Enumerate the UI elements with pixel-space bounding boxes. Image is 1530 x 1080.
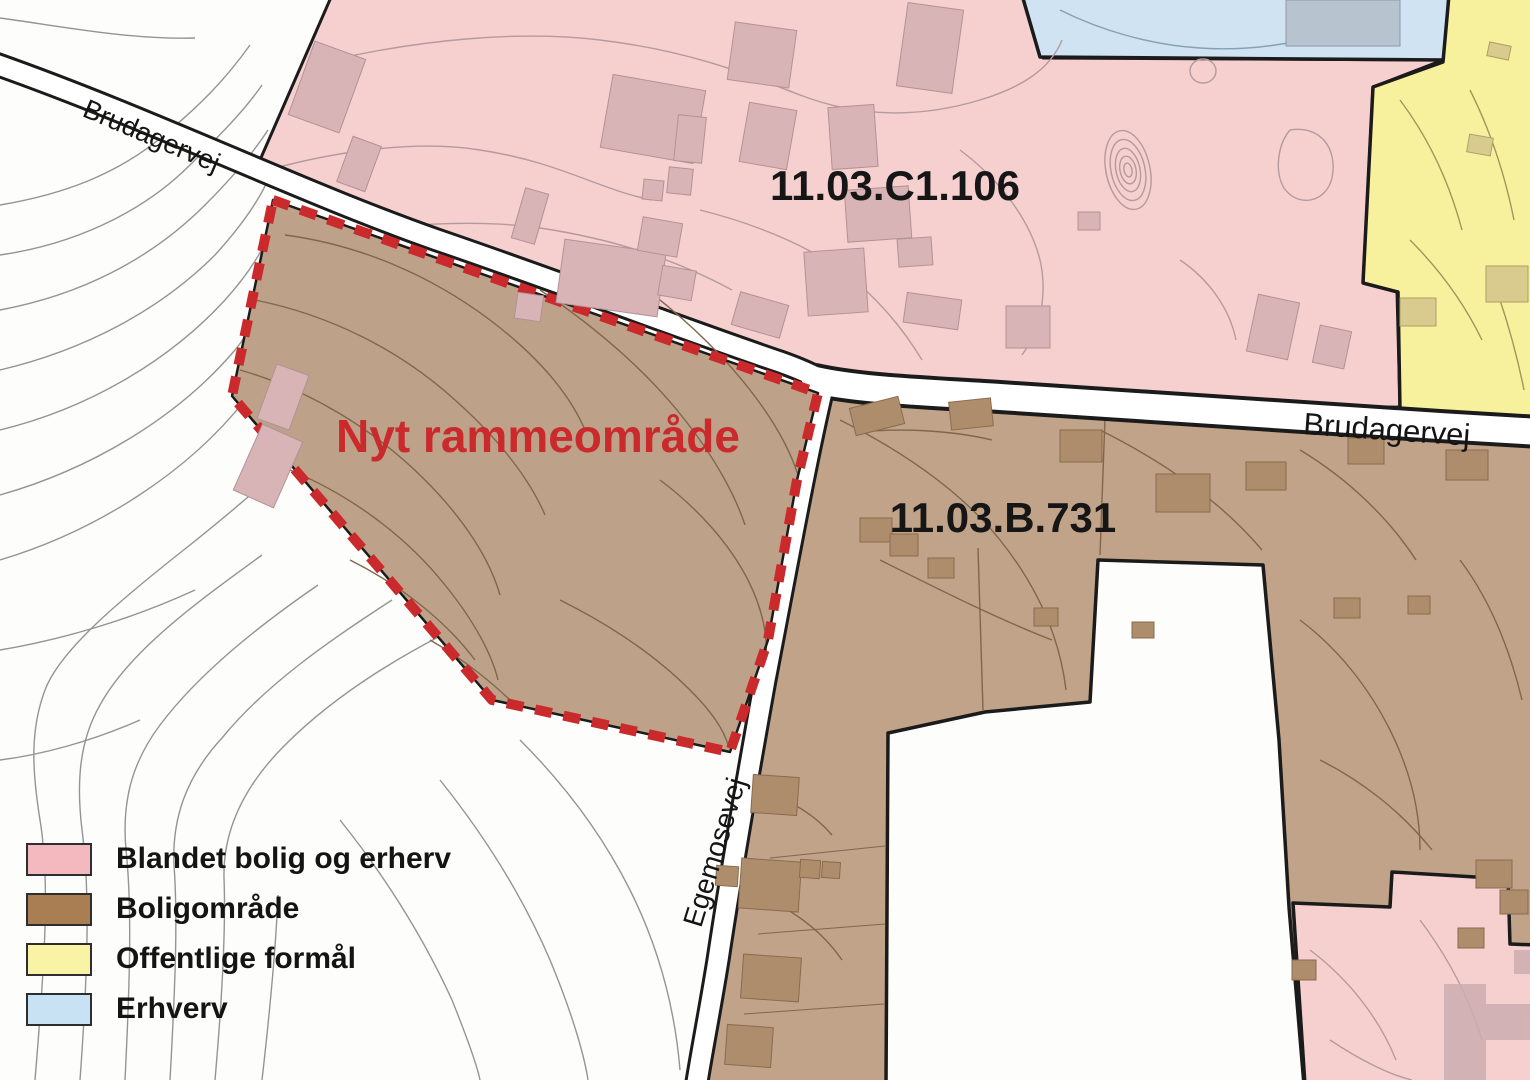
zone-label-residential: 11.03.B.731 [890, 494, 1117, 541]
legend-swatch-mixed [26, 843, 92, 876]
buildings-business-zone [1286, 0, 1400, 46]
legend-swatch-public [26, 943, 92, 976]
zone-label-mixed: 11.03.C1.106 [770, 162, 1020, 209]
legend-item-public: Offentlige formål [26, 934, 451, 984]
new-framework-area-label: Nyt rammeområde [336, 410, 740, 462]
legend-label-public: Offentlige formål [116, 942, 356, 976]
legend-swatch-business [26, 993, 92, 1026]
zone-mixed-use-south-area [1293, 872, 1530, 1080]
legend-item-business: Erhverv [26, 984, 451, 1034]
legend-item-mixed: Blandet bolig og erherv [26, 834, 451, 884]
legend-item-residential: Boligområde [26, 884, 451, 934]
legend-label-business: Erhverv [116, 992, 228, 1026]
map-legend: Blandet bolig og erherv Boligområde Offe… [26, 834, 451, 1034]
legend-label-mixed: Blandet bolig og erherv [116, 842, 451, 876]
legend-swatch-residential [26, 893, 92, 926]
legend-label-residential: Boligområde [116, 892, 299, 926]
zoning-map: 11.03.C1.106 11.03.B.731 Nyt rammeområde… [0, 0, 1530, 1080]
